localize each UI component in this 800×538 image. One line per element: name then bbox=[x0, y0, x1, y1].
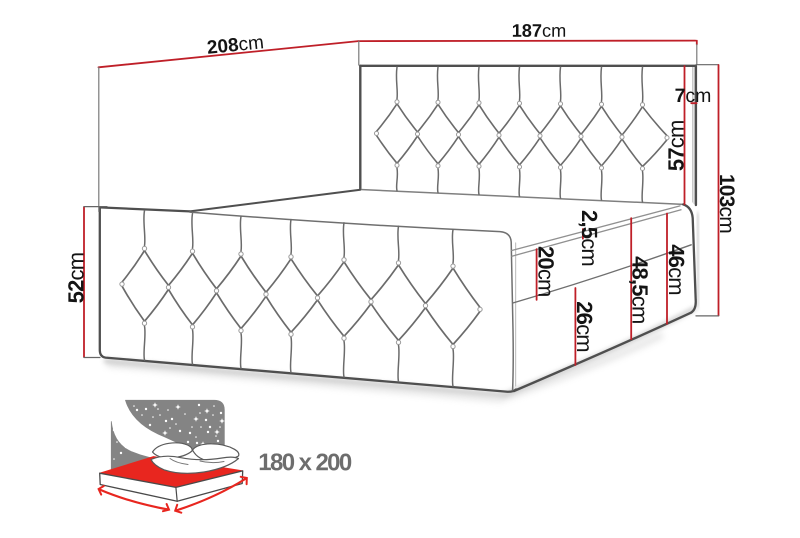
svg-text:20cm: 20cm bbox=[533, 246, 558, 297]
svg-text:26cm: 26cm bbox=[572, 301, 597, 352]
svg-text:103cm: 103cm bbox=[715, 174, 738, 233]
svg-text:52cm: 52cm bbox=[64, 253, 89, 304]
svg-text:180 x 200: 180 x 200 bbox=[258, 449, 352, 476]
svg-text:46cm: 46cm bbox=[664, 244, 689, 295]
svg-text:2,5cm: 2,5cm bbox=[577, 210, 602, 266]
svg-text:7cm: 7cm bbox=[675, 85, 712, 107]
svg-text:48,5cm: 48,5cm bbox=[627, 256, 652, 323]
svg-text:187cm: 187cm bbox=[512, 21, 567, 41]
svg-text:57cm: 57cm bbox=[664, 120, 689, 171]
